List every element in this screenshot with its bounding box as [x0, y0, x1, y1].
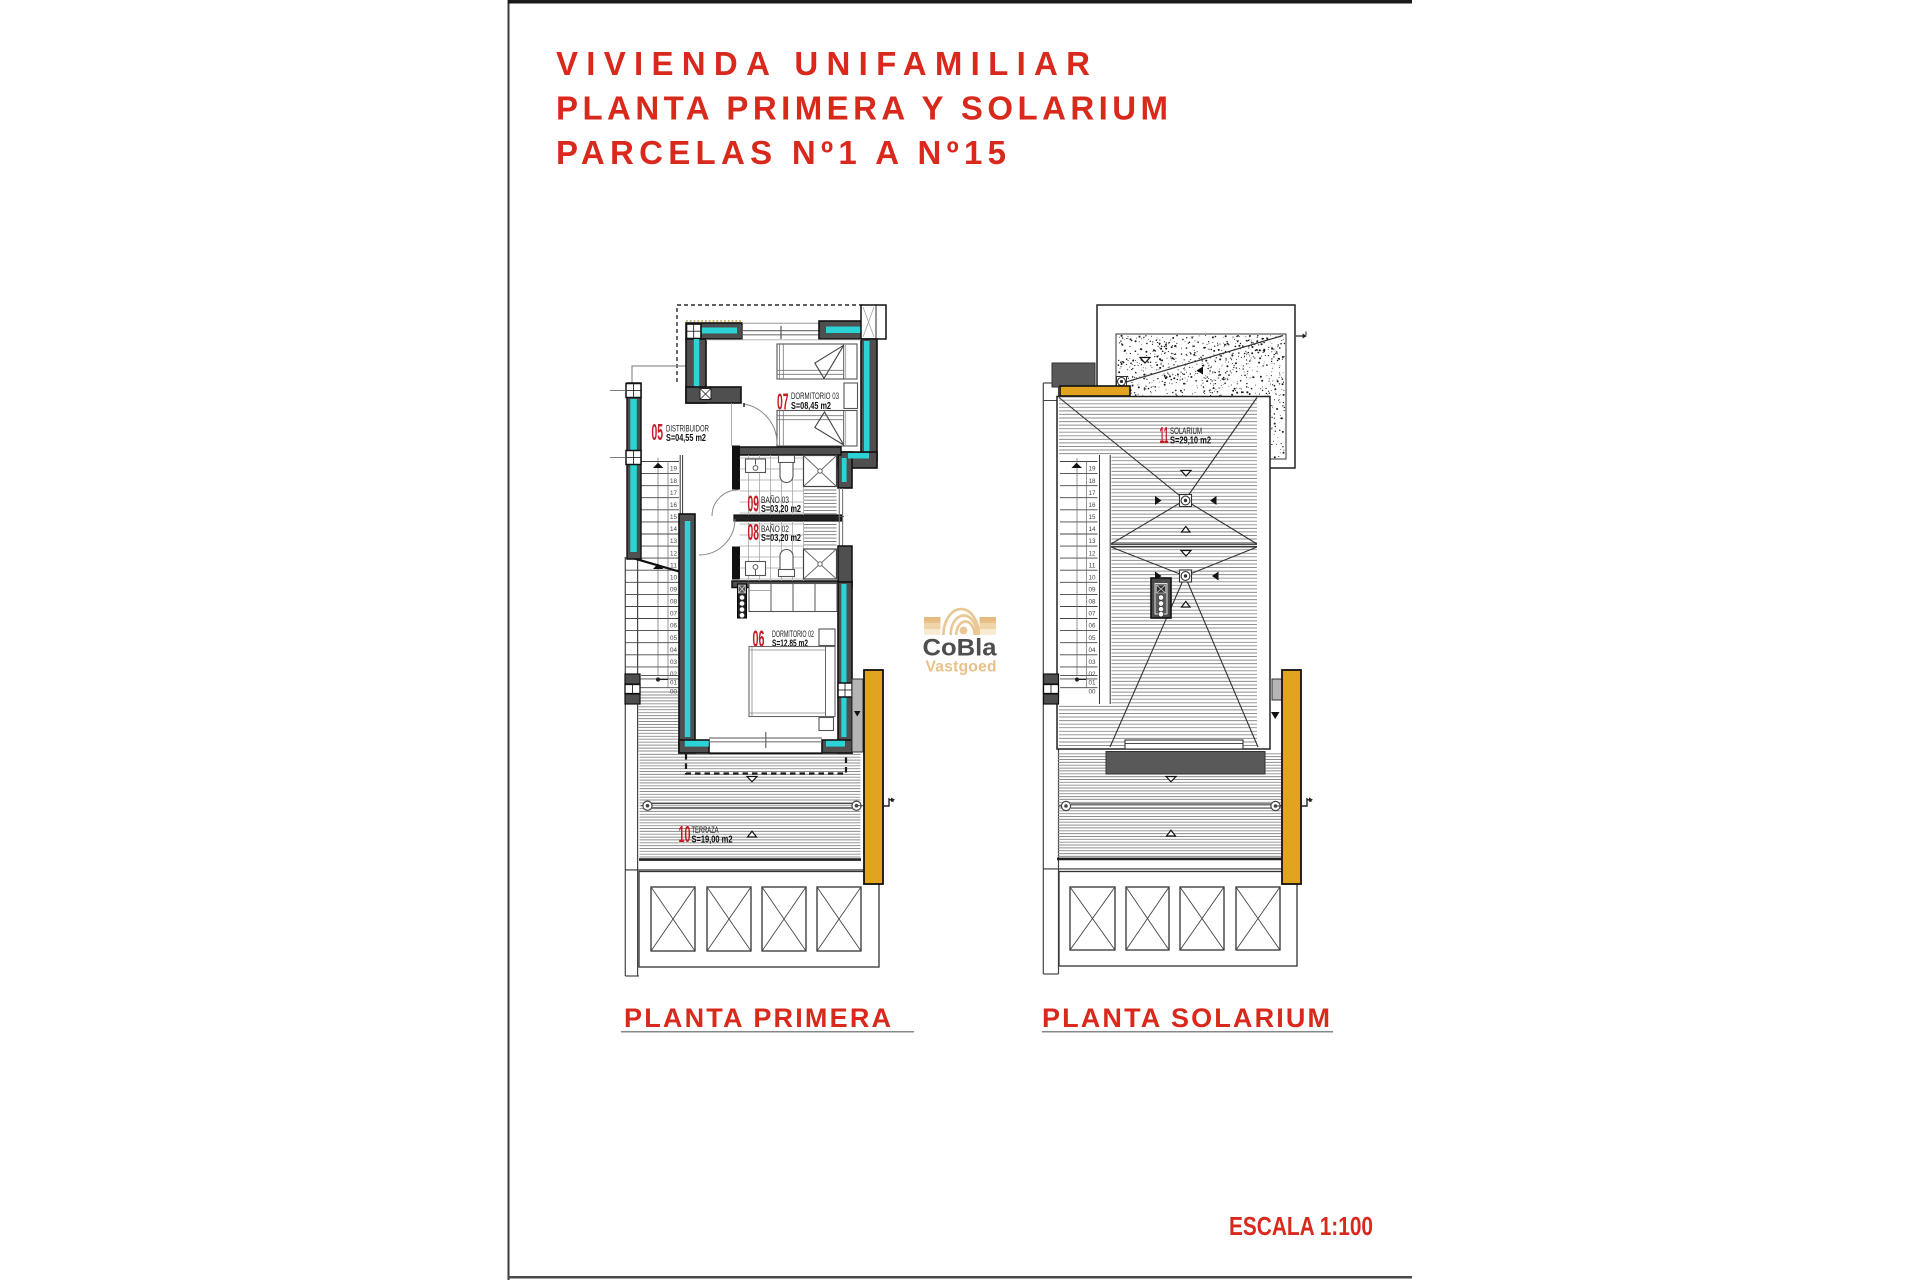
svg-text:09: 09 [748, 491, 760, 517]
svg-text:17: 17 [1089, 490, 1097, 497]
svg-text:S=03,20 m2: S=03,20 m2 [761, 532, 801, 544]
svg-text:S=08,45 m2: S=08,45 m2 [791, 400, 831, 412]
svg-text:14: 14 [1089, 526, 1097, 533]
svg-text:16: 16 [1089, 502, 1097, 509]
svg-text:S=29,10 m2: S=29,10 m2 [1170, 435, 1211, 447]
svg-text:Vastgoed: Vastgoed [926, 659, 997, 676]
svg-text:14: 14 [670, 526, 678, 533]
svg-text:11: 11 [1089, 562, 1097, 569]
svg-text:PLANTA SOLARIUM: PLANTA SOLARIUM [1042, 1003, 1330, 1033]
svg-text:01: 01 [670, 680, 678, 687]
svg-text:07: 07 [1089, 611, 1097, 618]
svg-text:09: 09 [670, 587, 678, 594]
svg-text:12: 12 [1089, 550, 1097, 557]
svg-text:10: 10 [1089, 574, 1097, 581]
svg-text:PLANTA PRIMERA: PLANTA PRIMERA [624, 1003, 891, 1033]
svg-text:S=03,20 m2: S=03,20 m2 [761, 503, 801, 515]
svg-text:02: 02 [670, 671, 678, 678]
svg-text:01: 01 [1089, 680, 1097, 687]
svg-text:03: 03 [670, 659, 678, 666]
svg-text:13: 13 [1089, 538, 1097, 545]
svg-text:PARCELAS Nº1 A Nº15: PARCELAS Nº1 A Nº15 [556, 134, 1006, 171]
svg-text:ESCALA 1:100: ESCALA 1:100 [1229, 1211, 1373, 1241]
svg-text:06: 06 [670, 623, 678, 630]
svg-text:15: 15 [670, 514, 678, 521]
svg-text:04: 04 [670, 647, 678, 654]
svg-text:08: 08 [670, 599, 678, 606]
svg-text:02: 02 [1089, 671, 1097, 678]
svg-text:13: 13 [670, 538, 678, 545]
svg-text:12: 12 [670, 550, 678, 557]
svg-text:11: 11 [1160, 422, 1169, 448]
svg-text:08: 08 [1089, 599, 1097, 606]
svg-text:08: 08 [748, 519, 760, 545]
svg-text:19: 19 [1089, 466, 1097, 473]
svg-text:15: 15 [1089, 514, 1097, 521]
svg-text:10: 10 [679, 821, 691, 847]
svg-text:VIVIENDA UNIFAMILIAR: VIVIENDA UNIFAMILIAR [556, 45, 1090, 82]
svg-text:18: 18 [1089, 478, 1097, 485]
svg-text:04: 04 [1089, 647, 1097, 654]
svg-text:05: 05 [670, 635, 678, 642]
svg-text:S=04,55 m2: S=04,55 m2 [666, 432, 706, 444]
svg-text:05: 05 [652, 419, 664, 445]
svg-text:10: 10 [670, 574, 678, 581]
svg-text:00: 00 [670, 689, 678, 696]
svg-text:07: 07 [777, 389, 789, 415]
svg-text:05: 05 [1089, 635, 1097, 642]
svg-text:16: 16 [670, 502, 678, 509]
svg-text:CoBla: CoBla [923, 635, 998, 662]
svg-text:PLANTA PRIMERA Y SOLARIUM: PLANTA PRIMERA Y SOLARIUM [556, 90, 1168, 127]
svg-text:03: 03 [1089, 659, 1097, 666]
svg-text:00: 00 [1089, 689, 1097, 696]
svg-text:09: 09 [1089, 587, 1097, 594]
svg-text:17: 17 [670, 490, 678, 497]
svg-text:S=19,00 m2: S=19,00 m2 [692, 834, 733, 846]
svg-text:06: 06 [1089, 623, 1097, 630]
svg-text:18: 18 [670, 478, 678, 485]
svg-text:19: 19 [670, 466, 678, 473]
svg-text:07: 07 [670, 611, 678, 618]
